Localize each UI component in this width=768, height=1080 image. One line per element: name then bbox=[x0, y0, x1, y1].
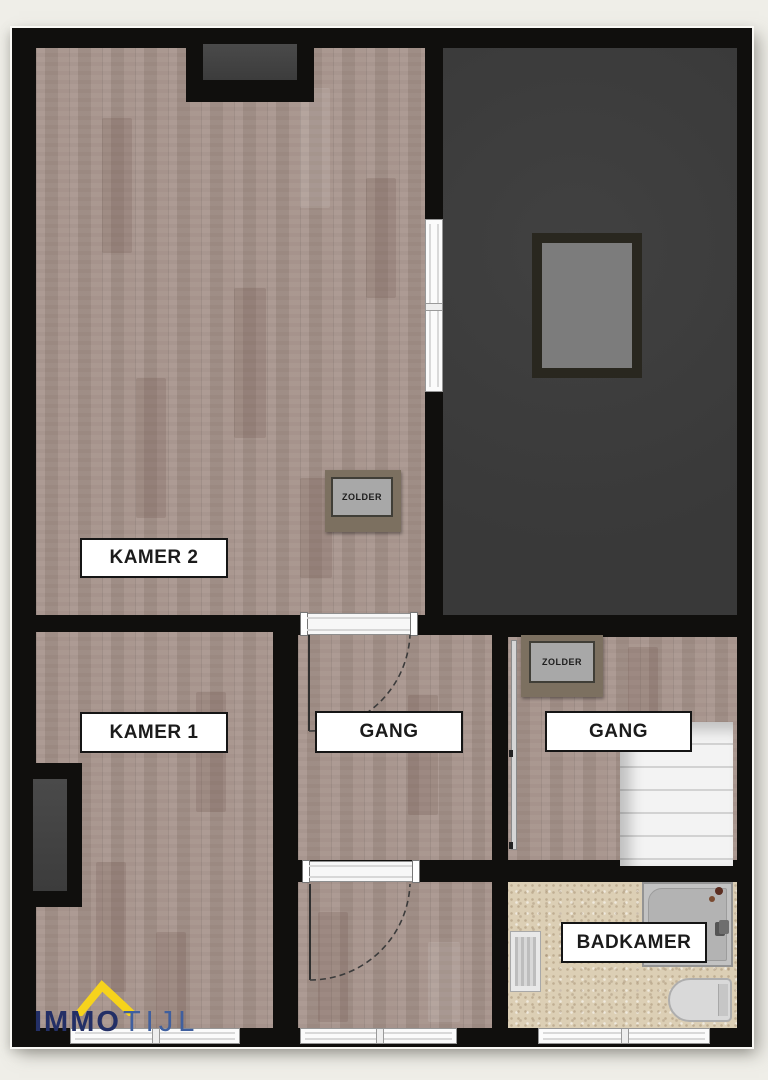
door-swing-arc bbox=[310, 884, 410, 980]
shower-head-icon bbox=[715, 887, 723, 895]
window-mullion bbox=[376, 1029, 384, 1043]
label-badkamer: BADKAMER bbox=[561, 922, 707, 963]
floor-plan: ZOLDER ZOLDER bbox=[12, 28, 752, 1047]
label-kamer1-text: KAMER 1 bbox=[109, 722, 198, 744]
shower-head-icon bbox=[709, 896, 715, 902]
logo-immo-tijl: IMMO TIJL bbox=[30, 976, 230, 1042]
radiator bbox=[510, 931, 541, 992]
label-gang-left: GANG bbox=[315, 711, 463, 753]
window-badkamer bbox=[538, 1028, 710, 1044]
label-gang-right: GANG bbox=[545, 711, 692, 752]
label-kamer1: KAMER 1 bbox=[80, 712, 228, 753]
logo-immo-text: IMMO bbox=[34, 1006, 121, 1039]
shower-handle bbox=[719, 920, 729, 934]
label-kamer2-text: KAMER 2 bbox=[109, 547, 198, 569]
radiator-fins bbox=[515, 937, 536, 986]
toilet bbox=[668, 978, 732, 1022]
label-badkamer-text: BADKAMER bbox=[577, 932, 692, 954]
label-gang-right-text: GANG bbox=[589, 721, 648, 743]
window-mullion bbox=[621, 1029, 629, 1043]
window-bottom-middle bbox=[300, 1028, 457, 1044]
label-kamer2: KAMER 2 bbox=[80, 538, 228, 578]
page: { "plan": { "rooms": { "kamer2": { "labe… bbox=[0, 0, 768, 1080]
logo-wordmark: IMMO TIJL bbox=[34, 1006, 199, 1039]
label-gang-left-text: GANG bbox=[360, 721, 419, 743]
toilet-tank bbox=[718, 984, 728, 1016]
logo-tijl-text: TIJL bbox=[123, 1006, 199, 1039]
